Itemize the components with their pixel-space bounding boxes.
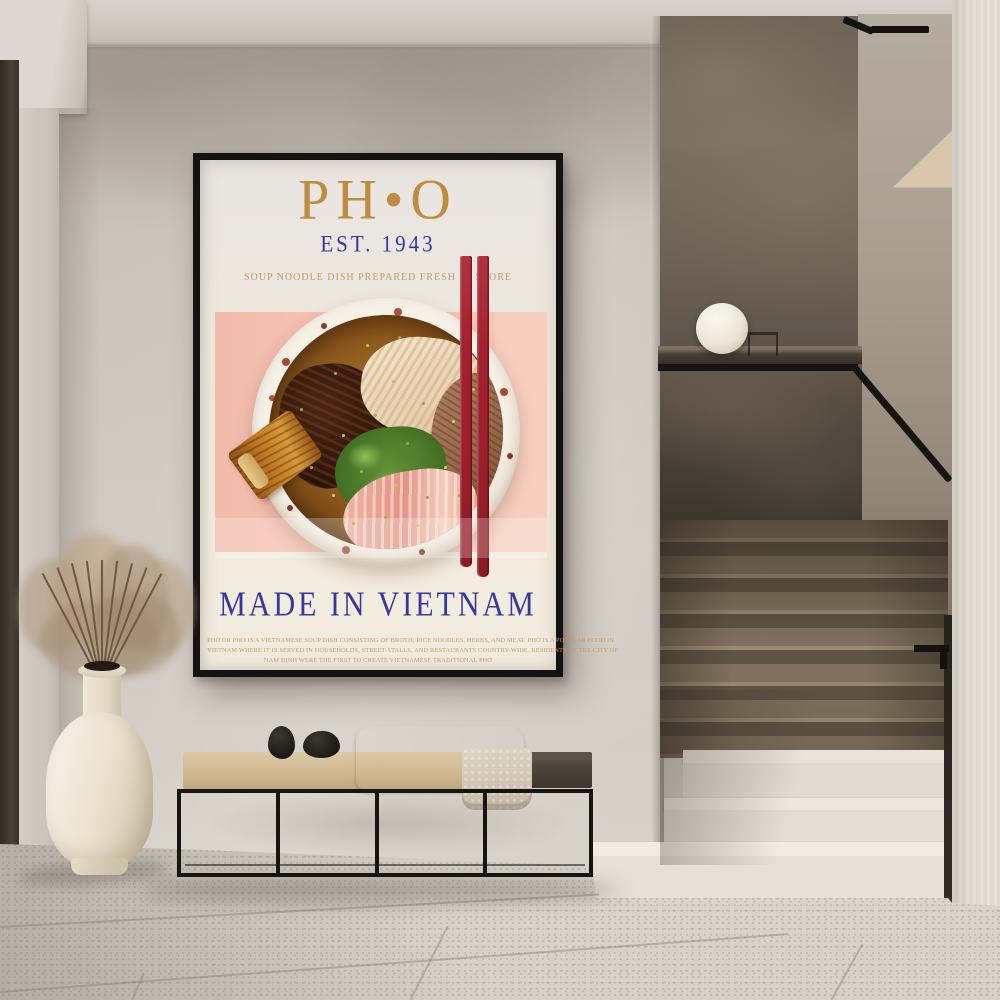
scallion-garnish	[386, 432, 389, 435]
smoked-glass-balustrade	[660, 364, 862, 522]
decor-stone	[268, 726, 295, 759]
description-line: VIETNAM WHERE IT IS SERVED IN HOUSEHOLDS…	[207, 646, 549, 656]
upper-stair-flight	[660, 520, 948, 758]
white-vase	[46, 712, 153, 868]
bench-leg	[177, 792, 181, 877]
bench-leg	[276, 792, 280, 877]
ceiling-edge-line	[87, 44, 660, 47]
bench-frame-rail	[177, 873, 593, 877]
small-stand	[748, 332, 778, 356]
vase-foot	[71, 858, 128, 875]
poster-title: PH•O	[200, 167, 556, 232]
pho-poster-frame: PH•O EST. 1943 SOUP NOODLE DISH PREPARED…	[193, 153, 563, 677]
bench-leg	[589, 792, 593, 877]
stairwell-back-wall	[660, 16, 862, 350]
bench-frame-rail	[177, 789, 593, 793]
stair-riser	[593, 856, 950, 900]
bench-leg	[375, 792, 379, 877]
wall-return-edge	[19, 108, 59, 848]
right-wall	[952, 0, 1000, 1000]
bench-shadow	[140, 876, 620, 904]
blanket-fold	[462, 748, 532, 810]
poster-established: EST. 1943	[200, 231, 556, 259]
bench-back-rail	[185, 864, 585, 866]
bench-side-table	[529, 752, 592, 788]
sphere-lamp	[696, 303, 748, 354]
stair-shadow	[660, 520, 948, 758]
stair-tread	[683, 750, 948, 763]
vase-opening	[84, 661, 120, 671]
bench-leg	[483, 792, 487, 877]
handrail-horizontal	[658, 364, 858, 371]
handrail-bracket-post	[940, 645, 947, 669]
description-line: NAM ĐỊNH WERE THE FIRST TO CREATE VIETNA…	[207, 656, 549, 666]
light-reflection-band	[215, 518, 547, 558]
stair-riser	[683, 763, 948, 798]
description-line: PHỞ OR PHO IS A VIETNAMESE SOUP DISH CON…	[207, 636, 549, 646]
stair-tread	[593, 842, 948, 856]
grass-stem	[101, 560, 103, 676]
stair-tread	[664, 798, 948, 810]
decor-stone	[303, 731, 340, 758]
poster-subtitle: SOUP NOODLE DISH PREPARED FRESH IN STORE	[200, 272, 556, 283]
dark-door-edge	[0, 60, 19, 848]
poster-description: PHỞ OR PHO IS A VIETNAMESE SOUP DISH CON…	[200, 636, 556, 666]
poster-headline: MADE IN VIETNAM	[200, 585, 556, 625]
interior-scene: PH•O EST. 1943 SOUP NOODLE DISH PREPARED…	[0, 0, 1000, 1000]
stair-riser	[664, 810, 948, 842]
handrail-upper	[871, 26, 929, 33]
